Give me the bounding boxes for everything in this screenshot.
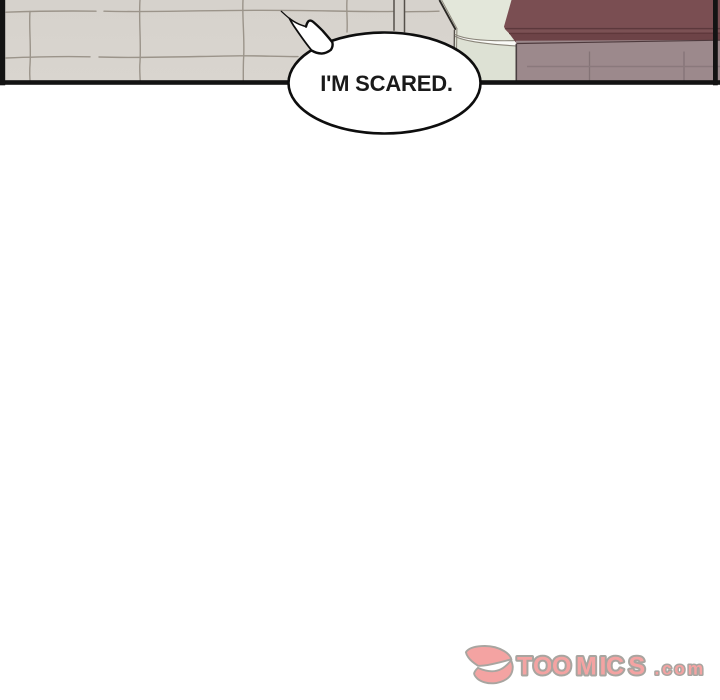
svg-text:O: O: [533, 653, 552, 681]
svg-text:S: S: [629, 653, 646, 681]
svg-text:T: T: [517, 653, 532, 681]
svg-text:.com: .com: [655, 659, 706, 679]
svg-text:M: M: [576, 653, 597, 681]
svg-text:C: C: [606, 653, 624, 681]
svg-text:I'M SCARED.: I'M SCARED.: [320, 71, 453, 96]
svg-text:O: O: [552, 653, 571, 681]
